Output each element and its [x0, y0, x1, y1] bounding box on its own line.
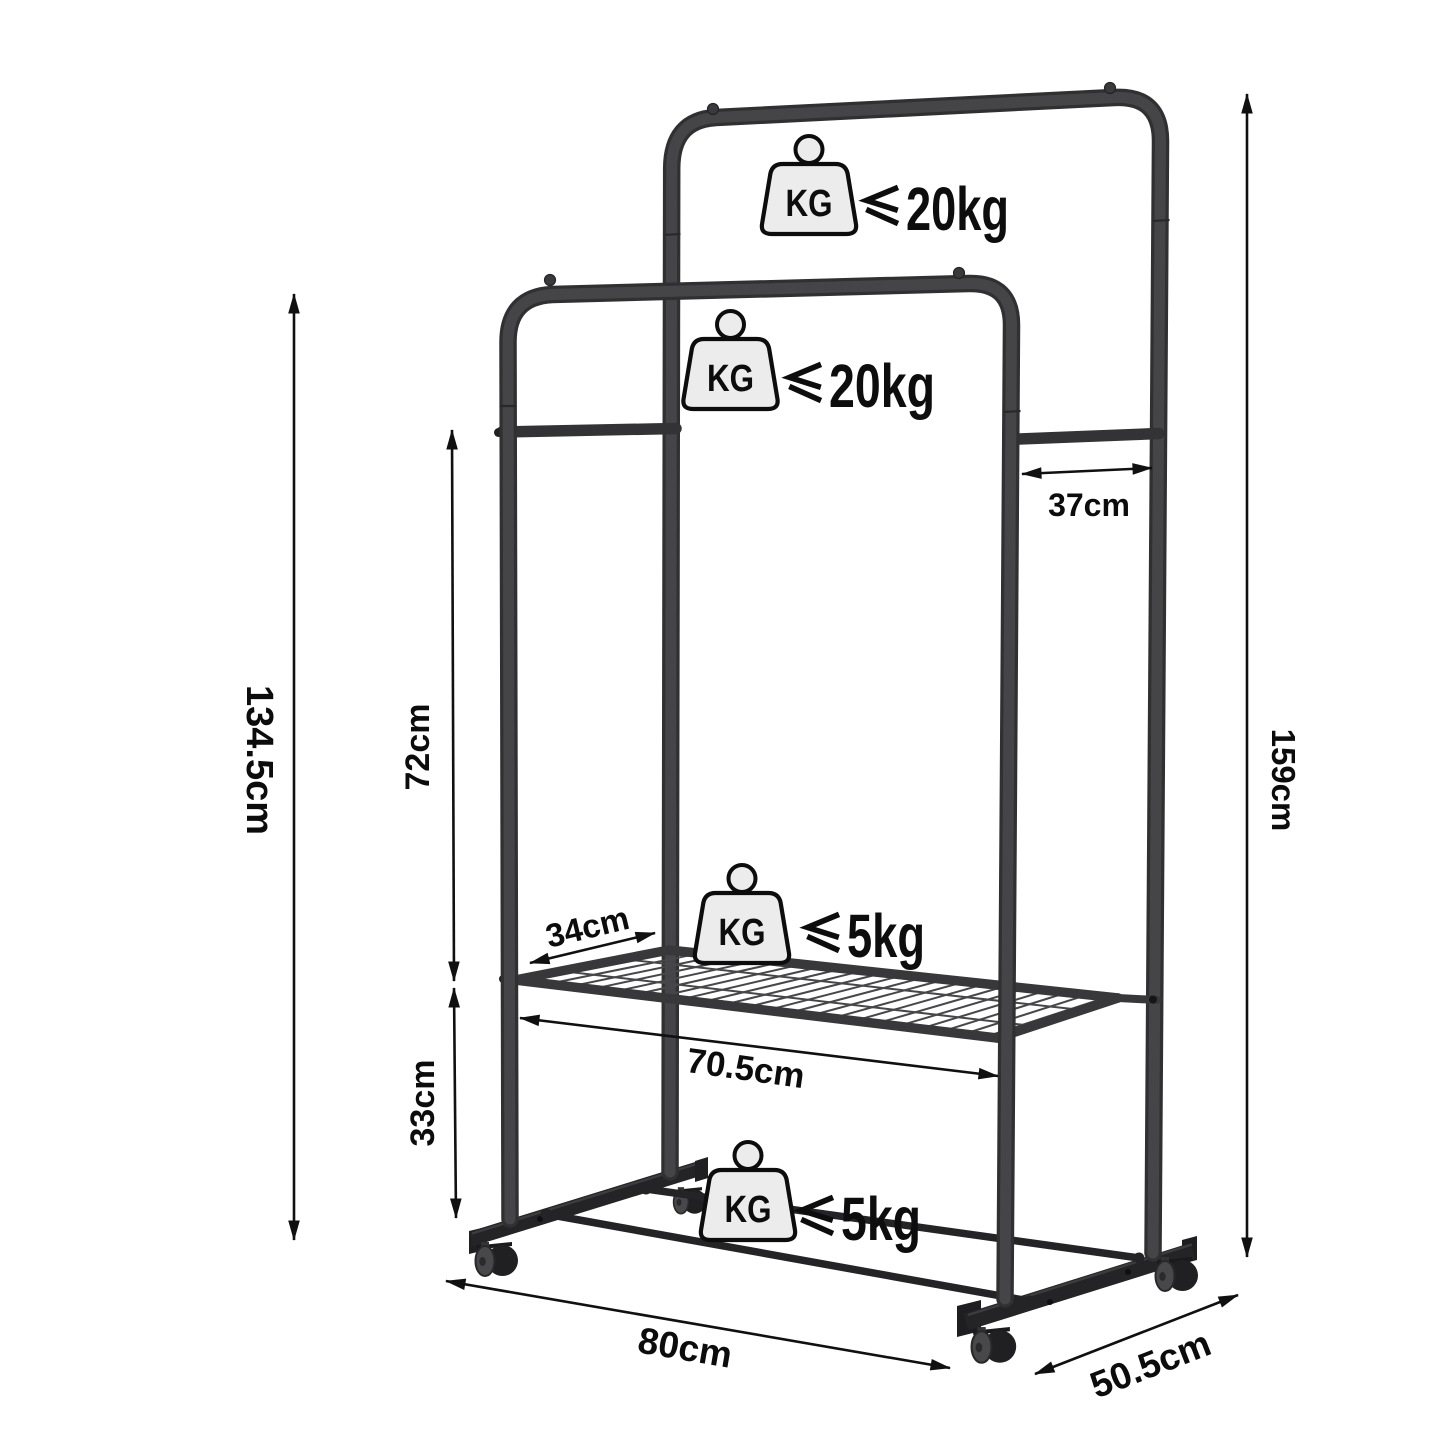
svg-text:50.5cm: 50.5cm [1085, 1322, 1217, 1406]
svg-text:KG: KG [786, 183, 833, 225]
svg-text:37cm: 37cm [1048, 487, 1130, 523]
svg-text:20kg: 20kg [906, 175, 1009, 243]
svg-text:5kg: 5kg [847, 902, 925, 970]
svg-text:KG: KG [707, 358, 754, 400]
svg-text:KG: KG [725, 1189, 772, 1231]
svg-text:33cm: 33cm [404, 1060, 442, 1147]
svg-text:5kg: 5kg [841, 1185, 921, 1253]
svg-text:134.5cm: 134.5cm [238, 685, 280, 835]
svg-text:159cm: 159cm [1265, 729, 1302, 832]
svg-text:20kg: 20kg [829, 352, 935, 420]
svg-text:KG: KG [719, 912, 766, 954]
svg-text:34cm: 34cm [542, 899, 633, 955]
svg-text:72cm: 72cm [399, 704, 437, 791]
